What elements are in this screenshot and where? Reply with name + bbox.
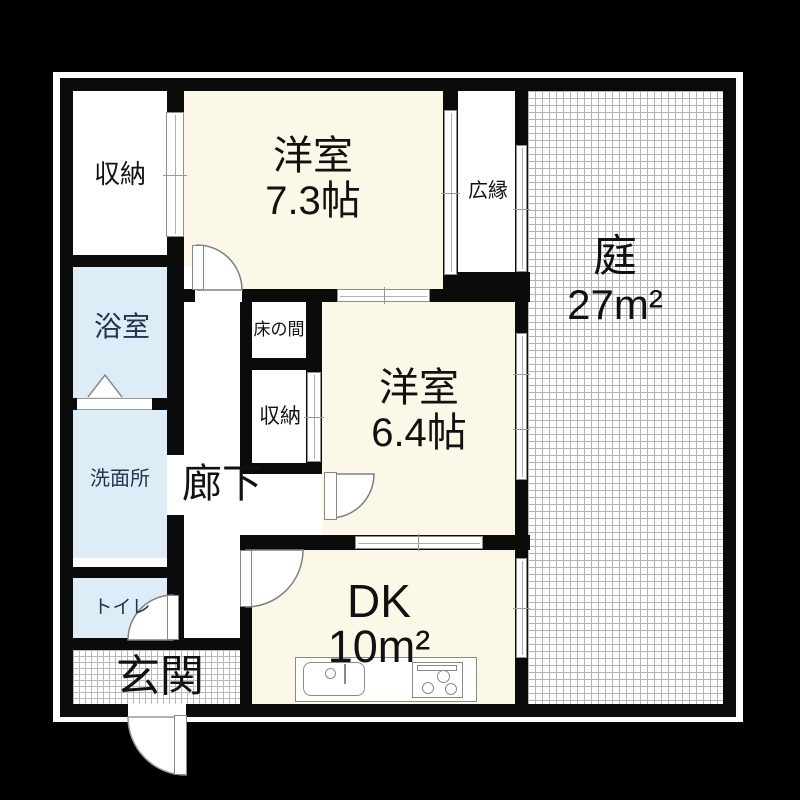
label-closet-mid: 収納: [259, 405, 301, 429]
wall-closet-top-bottom: [60, 255, 184, 267]
label-hallway: 廊下: [182, 462, 262, 507]
window-tick: [163, 175, 187, 176]
western64-window-symbol: [516, 333, 527, 480]
stove-burner-icon: [445, 683, 457, 695]
label-dk-size: 10m²: [328, 624, 431, 669]
stove-burner-icon: [437, 670, 450, 683]
window-tick: [513, 608, 530, 609]
label-western-6-4: 洋室 6.4帖: [371, 366, 467, 456]
door-leaf-front-entrance: [174, 715, 187, 775]
dk-window-symbol: [516, 558, 527, 658]
door-leaf-western73: [192, 245, 204, 290]
window-tick: [441, 193, 460, 194]
label-veranda: 広縁: [468, 180, 508, 202]
label-western-7-3-name: 洋室: [265, 134, 361, 179]
label-western-7-3: 洋室 7.3帖: [265, 134, 361, 224]
stove-burner-icon: [422, 682, 434, 694]
window-tick: [384, 287, 385, 304]
label-western-6-4-name: 洋室: [371, 366, 467, 411]
label-garden-size: 27m²: [567, 281, 663, 328]
label-bathroom: 浴室: [94, 311, 150, 342]
room-garden: [528, 91, 723, 704]
label-toilet: トイレ: [93, 597, 150, 618]
veranda-right-window-symbol: [516, 145, 527, 272]
bathroom-threshold: [77, 398, 152, 410]
floor-plan: 収納 洋室 7.3帖 広縁 庭 27m² 浴室 床の間 収納 洋室 6.4帖 洗…: [0, 0, 800, 800]
veranda-left-sliding-door-symbol: [444, 110, 457, 275]
label-garden-name: 庭: [567, 232, 663, 281]
label-entrance: 玄関: [116, 652, 204, 701]
wall-dk-left: [240, 607, 252, 717]
label-dining-kitchen: DK 10m²: [328, 578, 431, 669]
closet-top-sliding-door-symbol: [166, 112, 184, 237]
label-washroom: 洗面所: [90, 468, 150, 490]
opening-western73-door: [195, 289, 242, 302]
wall-washroom-toilet: [60, 567, 184, 578]
wall-entrance-top: [60, 638, 252, 650]
label-western-7-3-size: 7.3帖: [265, 179, 361, 224]
wall-outer-right: [723, 78, 736, 717]
wall-outer-top: [60, 78, 736, 91]
western64-dk-sliding-door-symbol: [355, 536, 483, 549]
door-leaf-western64: [324, 472, 337, 520]
label-closet-top: 収納: [94, 160, 146, 189]
wall-corridor-right: [240, 289, 252, 474]
window-tick: [418, 534, 419, 551]
label-western-6-4-size: 6.4帖: [371, 411, 467, 456]
wall-veranda-bottom: [443, 272, 530, 292]
window-tick: [513, 429, 530, 430]
room-hallway: [184, 267, 240, 638]
window-tick: [513, 209, 530, 210]
label-tokonoma: 床の間: [254, 320, 305, 339]
closet-mid-sliding-door-symbol: [307, 372, 321, 462]
label-garden: 庭 27m²: [567, 232, 663, 328]
label-dk-name: DK: [328, 578, 431, 624]
window-tick: [304, 417, 324, 418]
window-tick: [513, 374, 530, 375]
door-leaf-dk: [240, 550, 252, 607]
door-leaf-toilet: [167, 595, 179, 640]
wall-tokonoma-closet: [252, 358, 306, 370]
western64-top-window-symbol: [337, 289, 430, 302]
